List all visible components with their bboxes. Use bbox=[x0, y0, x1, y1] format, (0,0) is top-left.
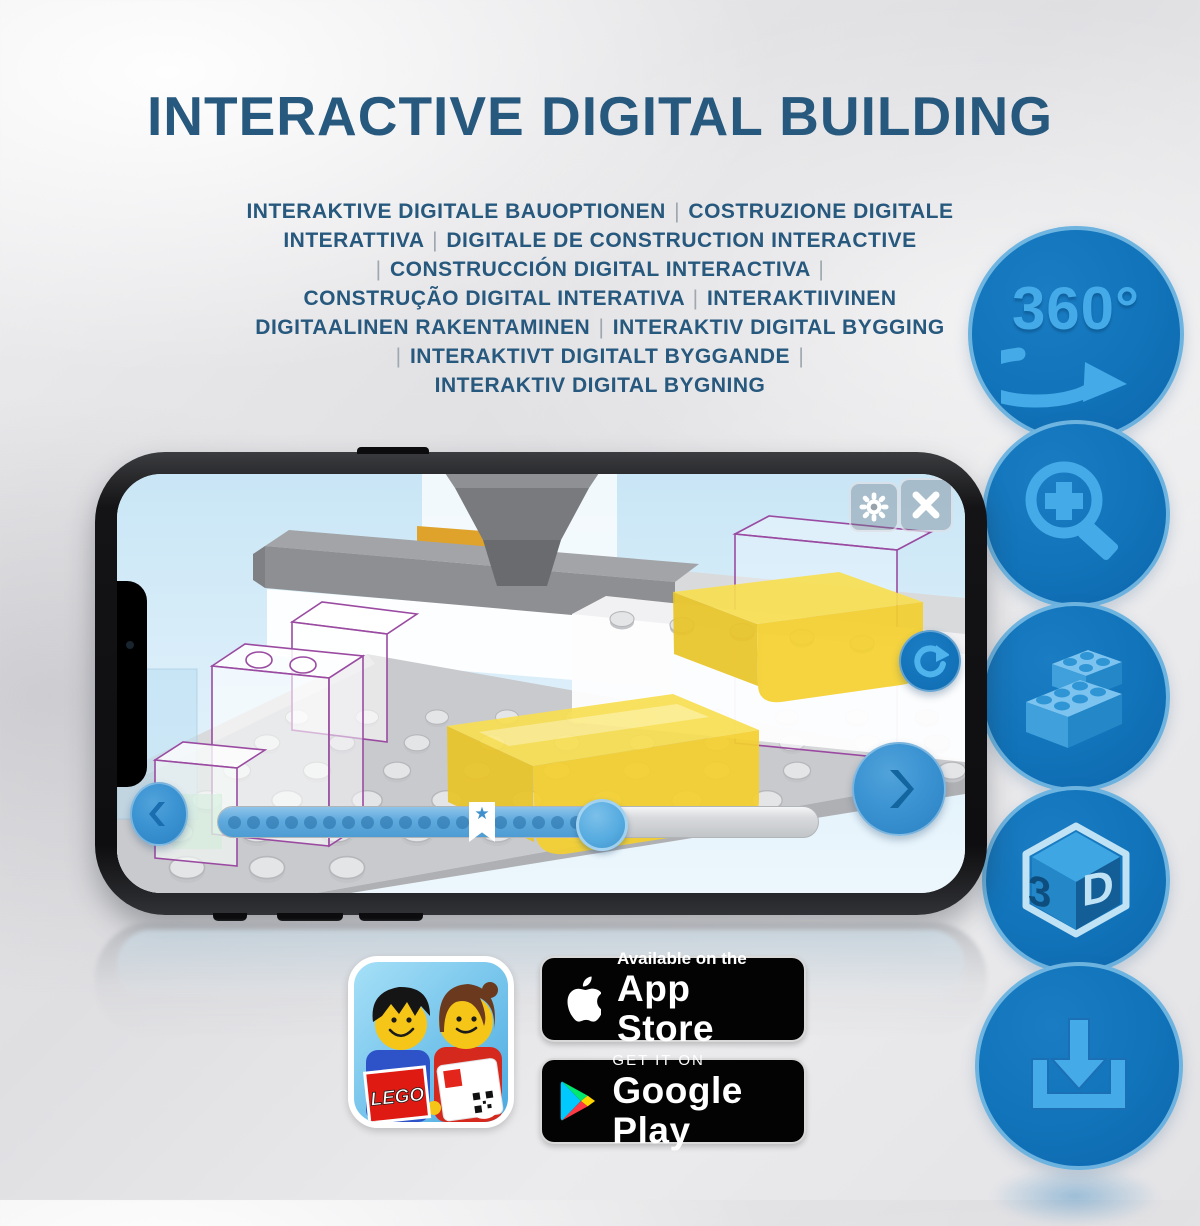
slider-dot bbox=[304, 816, 317, 829]
phone-volume-button bbox=[359, 913, 423, 921]
slider-dot bbox=[551, 816, 564, 829]
close-icon bbox=[912, 491, 940, 519]
slider-fill bbox=[218, 807, 599, 837]
feature-zoom-in bbox=[982, 420, 1170, 608]
feature-brick-building bbox=[980, 602, 1170, 792]
magnifier-plus-icon bbox=[1016, 454, 1136, 574]
phone-side-button bbox=[213, 913, 247, 921]
settings-button[interactable] bbox=[849, 482, 899, 532]
lego-bricks-icon bbox=[1010, 632, 1140, 762]
feature-3d-view: 3 D bbox=[982, 786, 1170, 974]
slider-dot bbox=[437, 816, 450, 829]
google-play-tagline: GET IT ON bbox=[612, 1051, 786, 1071]
slider-dot bbox=[399, 816, 412, 829]
close-button[interactable] bbox=[899, 478, 953, 532]
gear-icon bbox=[859, 492, 889, 522]
apple-icon bbox=[560, 972, 601, 1026]
marketing-page: { "header": { "title": "INTERACTIVE DIGI… bbox=[0, 0, 1200, 1200]
slider-dot bbox=[532, 816, 545, 829]
lego-minifigures-art: LEGO bbox=[354, 962, 508, 1122]
front-camera-icon bbox=[126, 641, 134, 649]
feature-360-rotation: 360° bbox=[968, 226, 1184, 442]
download-circle-reflection bbox=[990, 1166, 1160, 1226]
rotate-360-arrow-icon bbox=[1001, 340, 1151, 410]
subtitle-line: INTERAKTIVE DIGITALE BAUOPTIONEN | COSTR… bbox=[0, 197, 1200, 226]
app-store-badge[interactable]: Available on the App Store bbox=[540, 956, 806, 1042]
google-play-badge[interactable]: GET IT ON Google Play bbox=[540, 1058, 806, 1144]
slider-dot bbox=[285, 816, 298, 829]
play-triangle-icon bbox=[560, 1075, 596, 1127]
previous-step-button[interactable] bbox=[130, 782, 188, 846]
slider-dot bbox=[323, 816, 336, 829]
page-title: INTERACTIVE DIGITAL BUILDING bbox=[0, 84, 1200, 148]
feature-download bbox=[975, 962, 1183, 1170]
phone-top-button bbox=[357, 447, 429, 454]
next-step-button[interactable] bbox=[852, 742, 946, 836]
slider-dot bbox=[418, 816, 431, 829]
download-tray-icon bbox=[1014, 1001, 1144, 1131]
google-play-name: Google Play bbox=[612, 1071, 786, 1151]
phone-screen: ★ bbox=[117, 474, 965, 893]
rotate-button[interactable] bbox=[899, 630, 961, 692]
app-store-tagline: Available on the bbox=[617, 949, 786, 969]
chevron-left-icon bbox=[149, 802, 169, 826]
360-label: 360° bbox=[972, 274, 1180, 343]
phone-mockup: ★ bbox=[95, 452, 987, 915]
cube-letter-3: 3 bbox=[1028, 866, 1051, 919]
phone-notch bbox=[117, 581, 147, 787]
slider-dot bbox=[380, 816, 393, 829]
cube-letter-d: D bbox=[1082, 861, 1114, 918]
slider-dot bbox=[342, 816, 355, 829]
chevron-right-icon bbox=[884, 770, 914, 808]
slider-dot bbox=[247, 816, 260, 829]
rotate-refresh-icon bbox=[911, 642, 949, 680]
slider-dot bbox=[513, 816, 526, 829]
phone-volume-button bbox=[277, 913, 343, 921]
slider-dot bbox=[266, 816, 279, 829]
slider-dot bbox=[228, 816, 241, 829]
slider-dot bbox=[456, 816, 469, 829]
lego-app-icon[interactable]: LEGO bbox=[348, 956, 514, 1128]
slider-thumb[interactable] bbox=[576, 799, 628, 851]
app-store-name: App Store bbox=[617, 969, 786, 1049]
build-progress-slider[interactable]: ★ bbox=[217, 806, 819, 838]
slider-dot bbox=[361, 816, 374, 829]
slider-dot bbox=[494, 816, 507, 829]
